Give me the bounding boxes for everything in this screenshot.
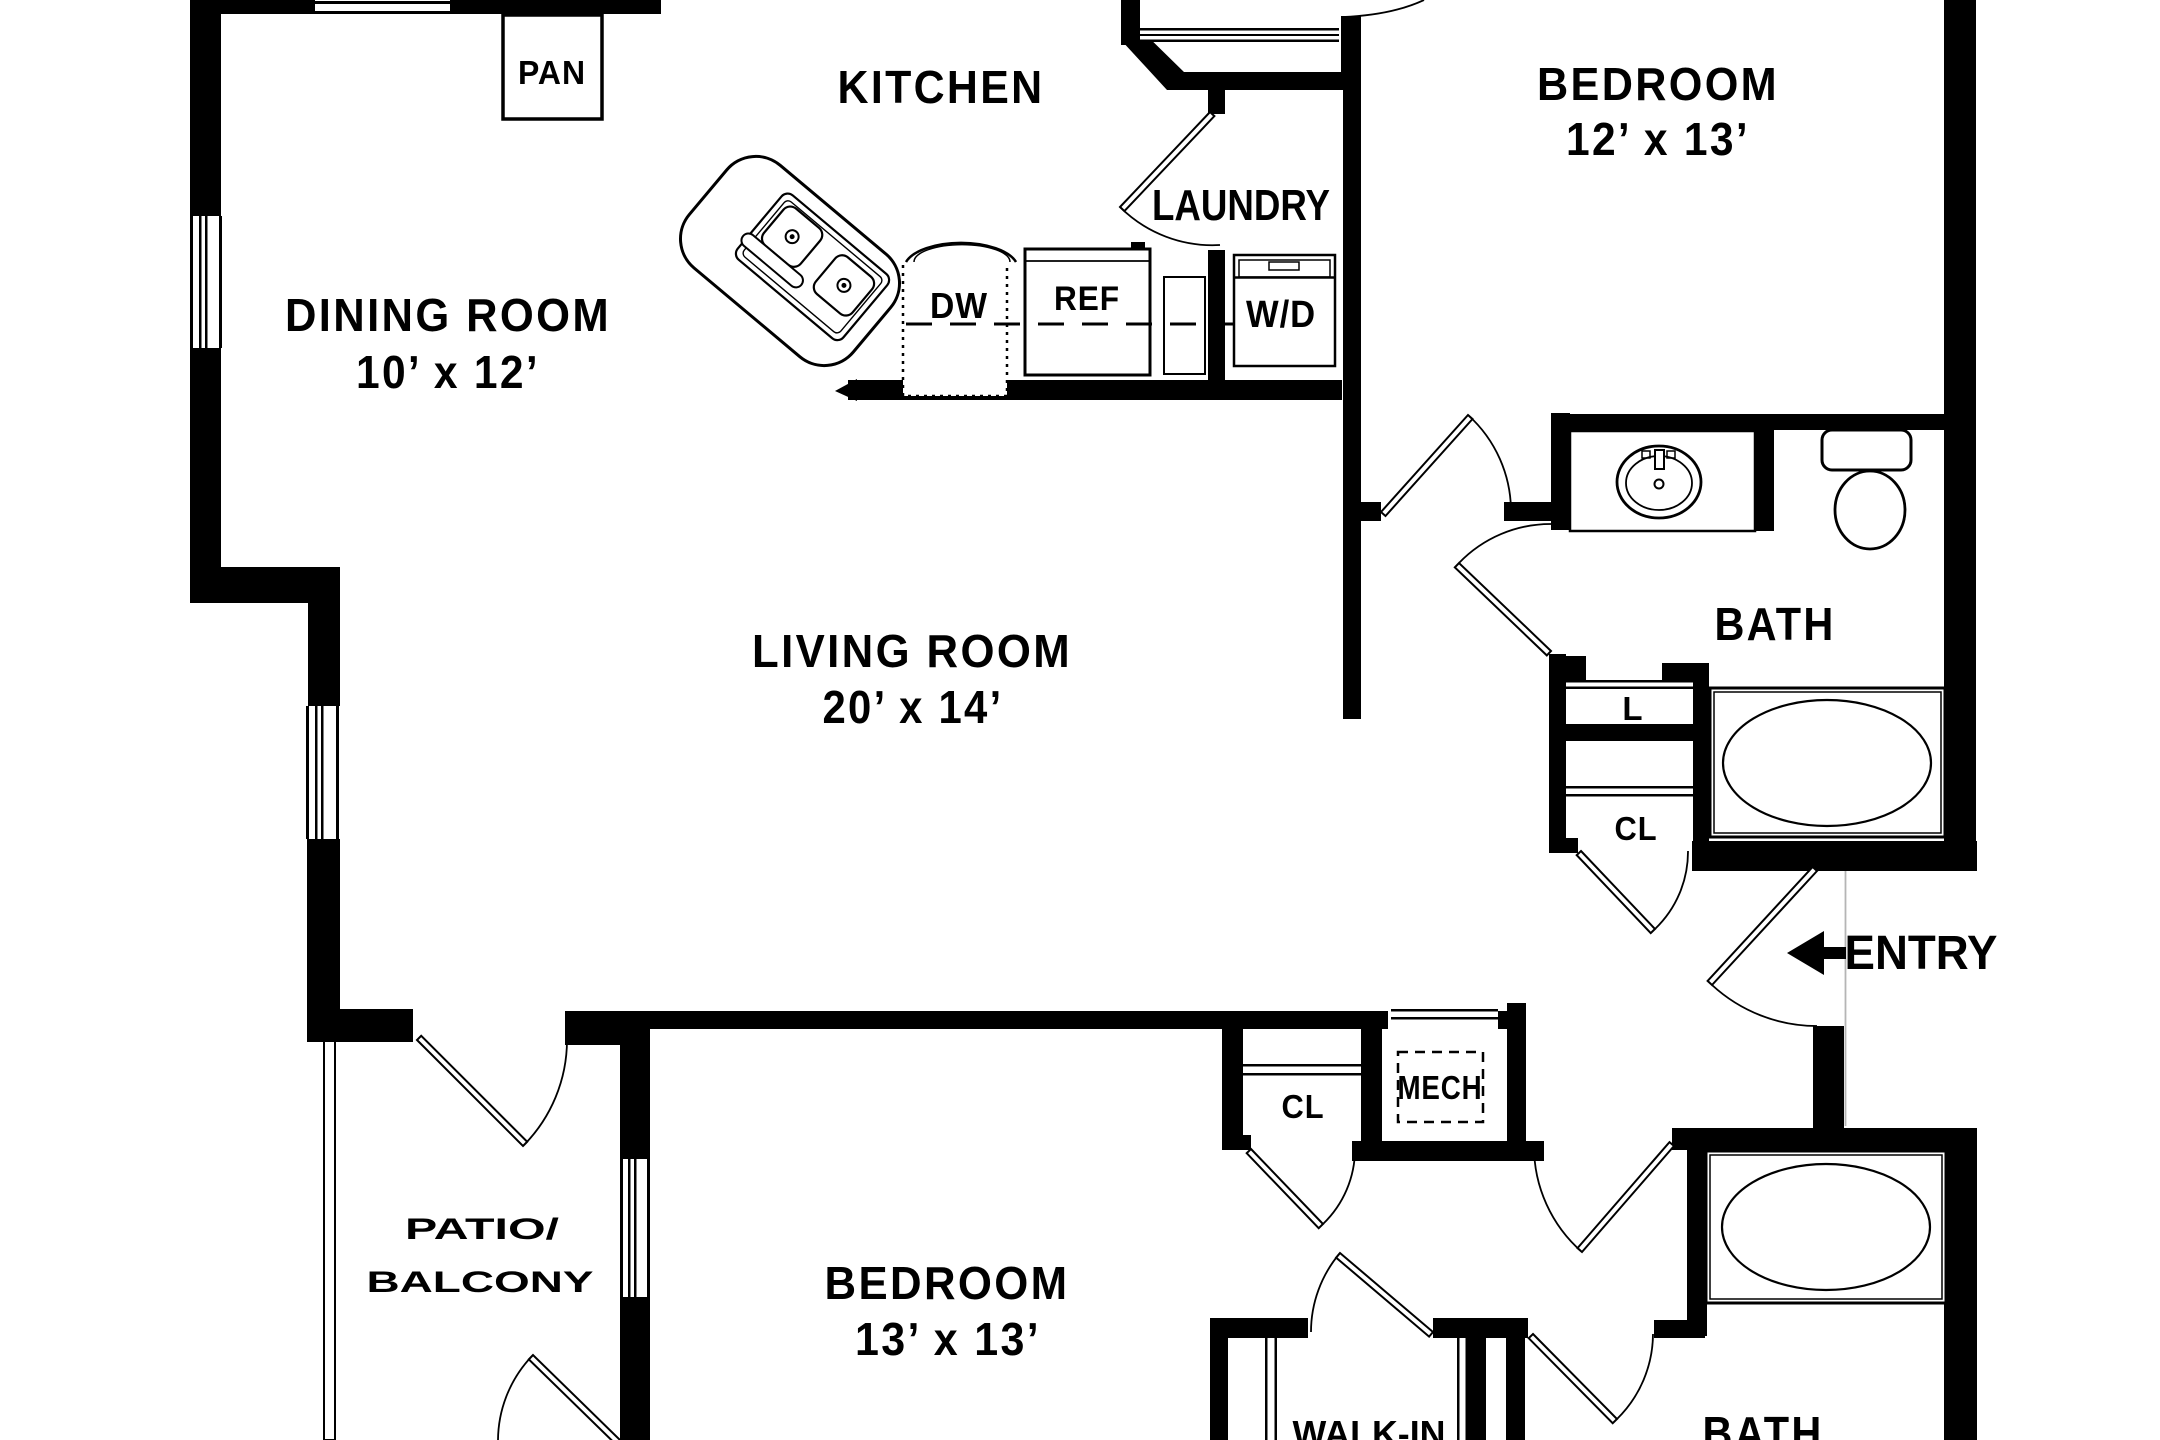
svg-text:L: L xyxy=(1622,690,1643,727)
svg-text:20’ x 14’: 20’ x 14’ xyxy=(823,681,1004,733)
svg-text:BEDROOM: BEDROOM xyxy=(825,1257,1070,1309)
svg-text:13’ x 13’: 13’ x 13’ xyxy=(855,1313,1041,1365)
svg-text:PATIO/: PATIO/ xyxy=(405,1213,560,1246)
svg-text:PAN: PAN xyxy=(518,54,586,91)
svg-text:DW: DW xyxy=(930,285,988,326)
svg-text:LIVING ROOM: LIVING ROOM xyxy=(752,625,1072,677)
svg-text:CL: CL xyxy=(1615,810,1658,847)
svg-text:W/D: W/D xyxy=(1246,294,1316,336)
svg-text:LAUNDRY: LAUNDRY xyxy=(1152,181,1330,230)
svg-text:KITCHEN: KITCHEN xyxy=(838,61,1045,113)
svg-text:12’ x 13’: 12’ x 13’ xyxy=(1566,113,1750,165)
svg-text:BATH: BATH xyxy=(1715,598,1836,650)
svg-text:BATH: BATH xyxy=(1703,1407,1824,1440)
svg-text:DINING ROOM: DINING ROOM xyxy=(285,289,611,341)
svg-text:BALCONY: BALCONY xyxy=(367,1266,594,1299)
svg-text:WALK-IN: WALK-IN xyxy=(1293,1413,1446,1440)
svg-text:BEDROOM: BEDROOM xyxy=(1537,58,1779,110)
svg-text:CL: CL xyxy=(1282,1088,1325,1125)
svg-text:ENTRY: ENTRY xyxy=(1845,927,1998,980)
svg-text:10’ x 12’: 10’ x 12’ xyxy=(356,346,540,398)
svg-text:MECH: MECH xyxy=(1398,1069,1483,1106)
svg-text:REF: REF xyxy=(1054,280,1120,318)
